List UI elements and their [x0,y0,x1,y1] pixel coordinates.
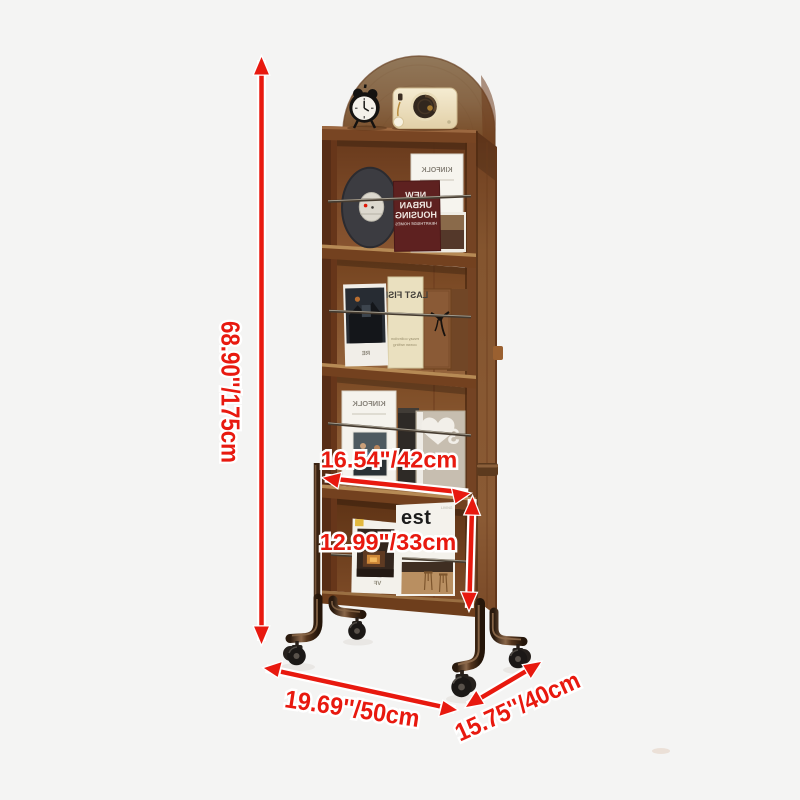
svg-text:KINFOLK: KINFOLK [421,167,452,174]
svg-text:HEARTHSIDE HOMES: HEARTHSIDE HOMES [395,221,437,227]
svg-text:LIVING: LIVING [441,506,453,510]
svg-text:HOUSING: HOUSING [395,210,437,221]
svg-text:68.90''/175cm: 68.90''/175cm [216,321,246,463]
svg-text:16.54"/42cm: 16.54"/42cm [321,447,458,473]
svg-text:est: est [401,507,431,529]
svg-text:3: 3 [447,424,459,449]
svg-text:LAST FISH: LAST FISH [382,290,429,300]
svg-text:VF: VF [373,581,381,587]
svg-text:KINFOLK: KINFOLK [352,399,386,408]
svg-text:12.99"/33cm: 12.99"/33cm [320,529,457,555]
svg-text:ocean writing: ocean writing [393,342,417,347]
svg-text:RE: RE [362,351,370,357]
svg-text:essay collection: essay collection [391,336,419,341]
svg-text:URBAN: URBAN [399,200,432,211]
